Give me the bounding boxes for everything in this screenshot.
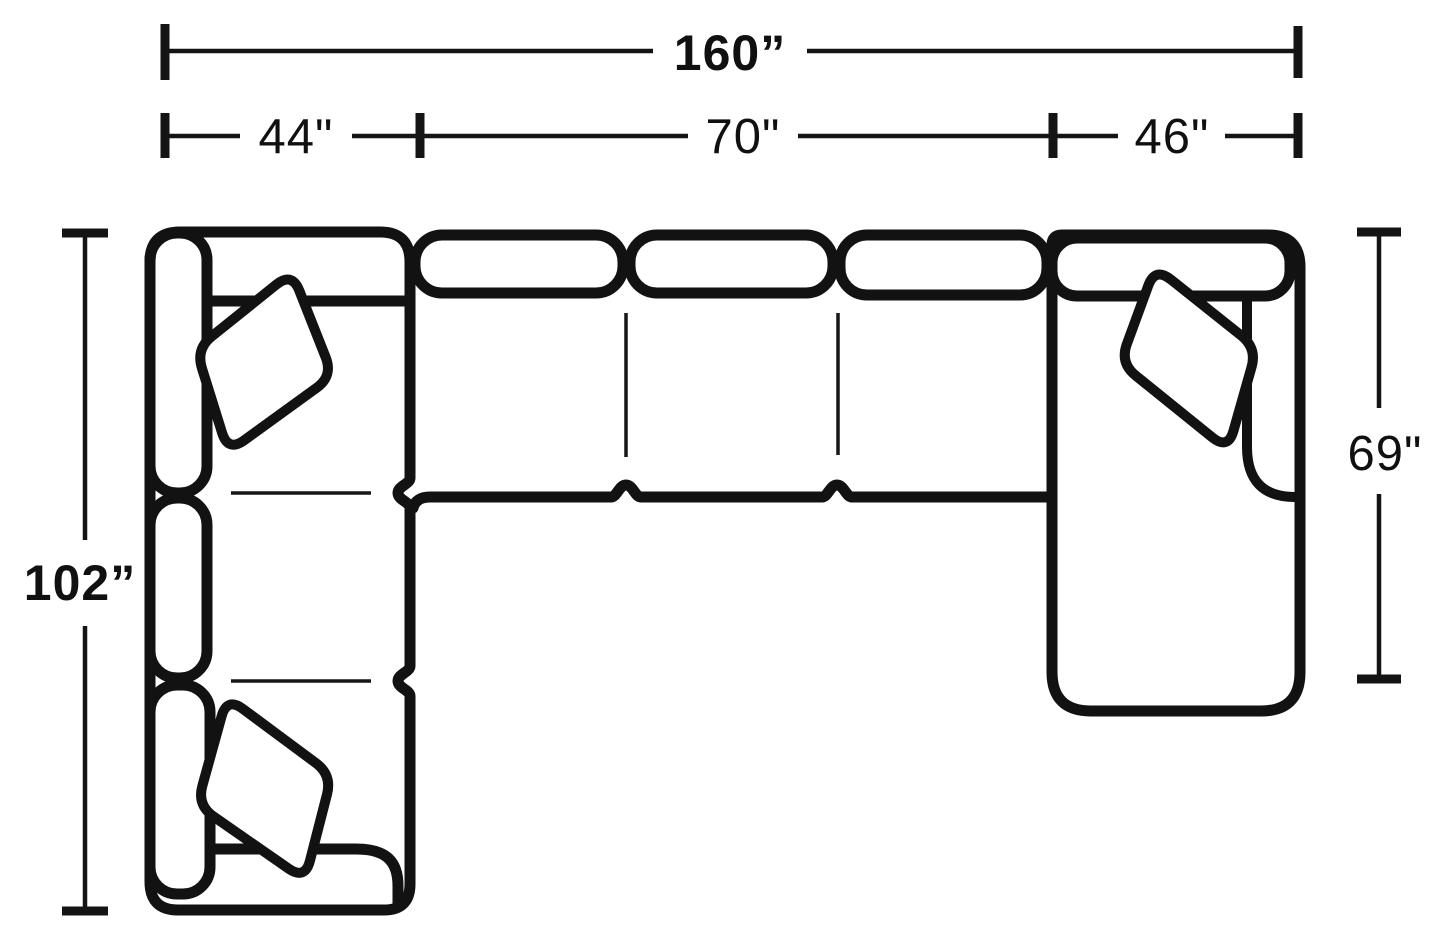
center-section-width-label: 70" (706, 110, 781, 164)
left-section-width-label: 44" (259, 110, 334, 164)
back-cushion (630, 235, 833, 293)
left-depth-label: 102” (24, 555, 136, 611)
total-width-label: 160” (674, 25, 786, 81)
right-depth-label: 69" (1348, 427, 1423, 481)
back-cushion (415, 235, 623, 293)
sofa-center-section (413, 235, 1048, 508)
sectional-sofa-dimension-diagram: 160” 44" 70" 46" 102” (0, 0, 1445, 948)
dimension-left-depth: 102” (24, 233, 136, 911)
dimension-right-depth: 69" (1348, 232, 1423, 679)
dimension-section-widths: 44" 70" 46" (165, 110, 1298, 164)
dimension-total-width: 160” (165, 24, 1298, 81)
right-section-width-label: 46" (1135, 110, 1210, 164)
back-cushion (840, 235, 1047, 295)
diagram-canvas: 160” 44" 70" 46" 102” (0, 0, 1445, 948)
seat-front-edge (413, 485, 1048, 508)
